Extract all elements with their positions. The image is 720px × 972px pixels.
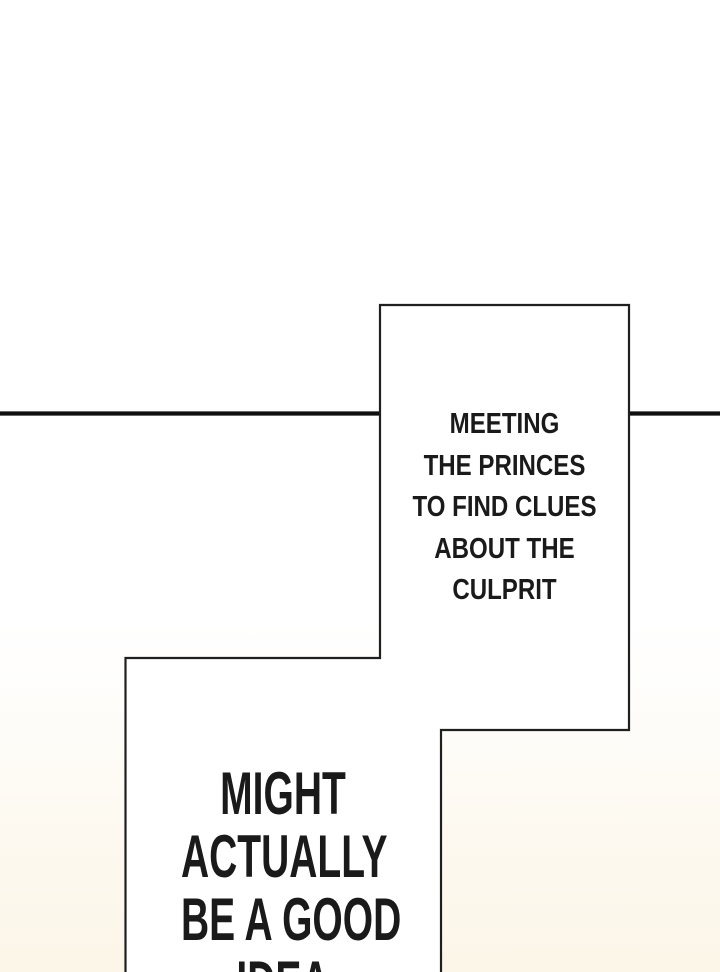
caption-line: IDEA bbox=[181, 951, 385, 972]
caption-line: THE PRINCES bbox=[401, 446, 608, 488]
caption-line: ACTUALLY bbox=[181, 825, 385, 888]
caption-line: ABOUT THE bbox=[401, 529, 608, 571]
caption-text-lower: MIGHT ACTUALLY BE A GOOD IDEA bbox=[181, 762, 385, 972]
caption-line: BE A GOOD bbox=[181, 888, 385, 951]
caption-text-upper: MEETING THE PRINCES TO FIND CLUES ABOUT … bbox=[401, 404, 608, 612]
caption-line: CULPRIT bbox=[401, 570, 608, 612]
comic-page: MEETING THE PRINCES TO FIND CLUES ABOUT … bbox=[0, 0, 720, 972]
caption-line: TO FIND CLUES bbox=[401, 487, 608, 529]
caption-line: MIGHT bbox=[181, 762, 385, 825]
caption-line: MEETING bbox=[401, 404, 608, 446]
